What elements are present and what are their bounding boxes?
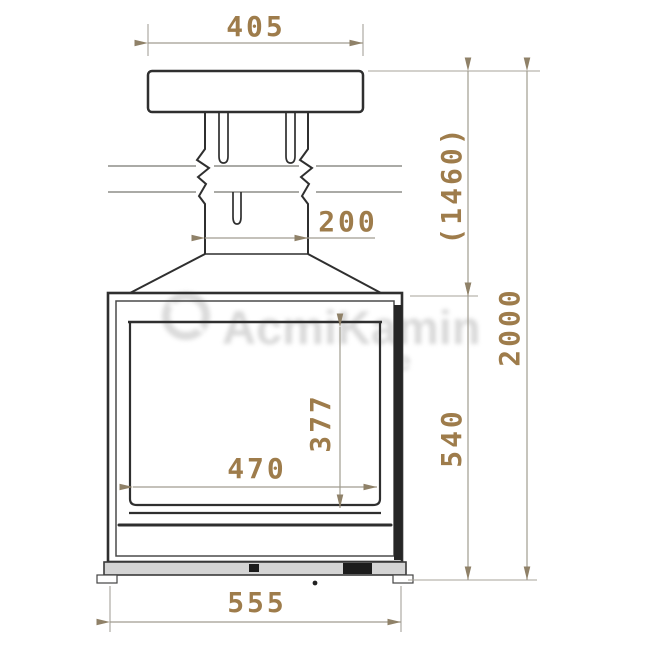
- mounting-pipes: [219, 112, 295, 224]
- dim-flue-width: 200: [205, 205, 378, 238]
- firebox-right-edge-band: [394, 305, 402, 560]
- hood: [130, 254, 381, 293]
- dim-label-540: 540: [435, 408, 468, 468]
- dim-label-377: 377: [304, 393, 337, 453]
- mounting-pipe-left: [219, 112, 228, 163]
- mounting-pipe-right: [286, 112, 295, 163]
- dim-label-1460: (1460): [435, 125, 468, 244]
- dim-ceiling-clearance: (1460): [435, 71, 468, 296]
- base-control-vent: [343, 563, 372, 574]
- dim-label-200: 200: [318, 205, 378, 238]
- base-foot-right: [393, 575, 413, 583]
- dim-label-405: 405: [226, 10, 286, 43]
- flue-wall-right: [300, 112, 312, 254]
- dim-firebox-width: 555: [110, 586, 401, 632]
- flue-wall-left: [197, 112, 209, 254]
- base-latch: [249, 564, 259, 572]
- hood-slant-left: [130, 254, 205, 293]
- dim-label-555: 555: [227, 586, 287, 619]
- base-knob: [313, 581, 318, 586]
- base-foot-left: [97, 575, 117, 583]
- dim-glass-height: 377: [304, 327, 340, 508]
- technical-drawing-canvas: AcmiKamin e: [0, 0, 650, 650]
- watermark: AcmiKamin e: [166, 296, 481, 376]
- watermark-text: AcmiKamin: [222, 301, 481, 354]
- dim-label-470: 470: [227, 452, 287, 485]
- dim-label-2000: 2000: [493, 287, 526, 366]
- mounting-pipe-center: [233, 192, 241, 224]
- top-mounting-plate: [148, 71, 363, 112]
- fireplace-drawing: AcmiKamin e: [0, 0, 650, 650]
- watermark-swirl-slash: [170, 303, 203, 331]
- hood-slant-right: [308, 254, 381, 293]
- ceiling-lines: [108, 166, 402, 192]
- dim-top-plate-width: 405: [148, 10, 363, 56]
- dim-overall-height: 2000: [493, 71, 527, 580]
